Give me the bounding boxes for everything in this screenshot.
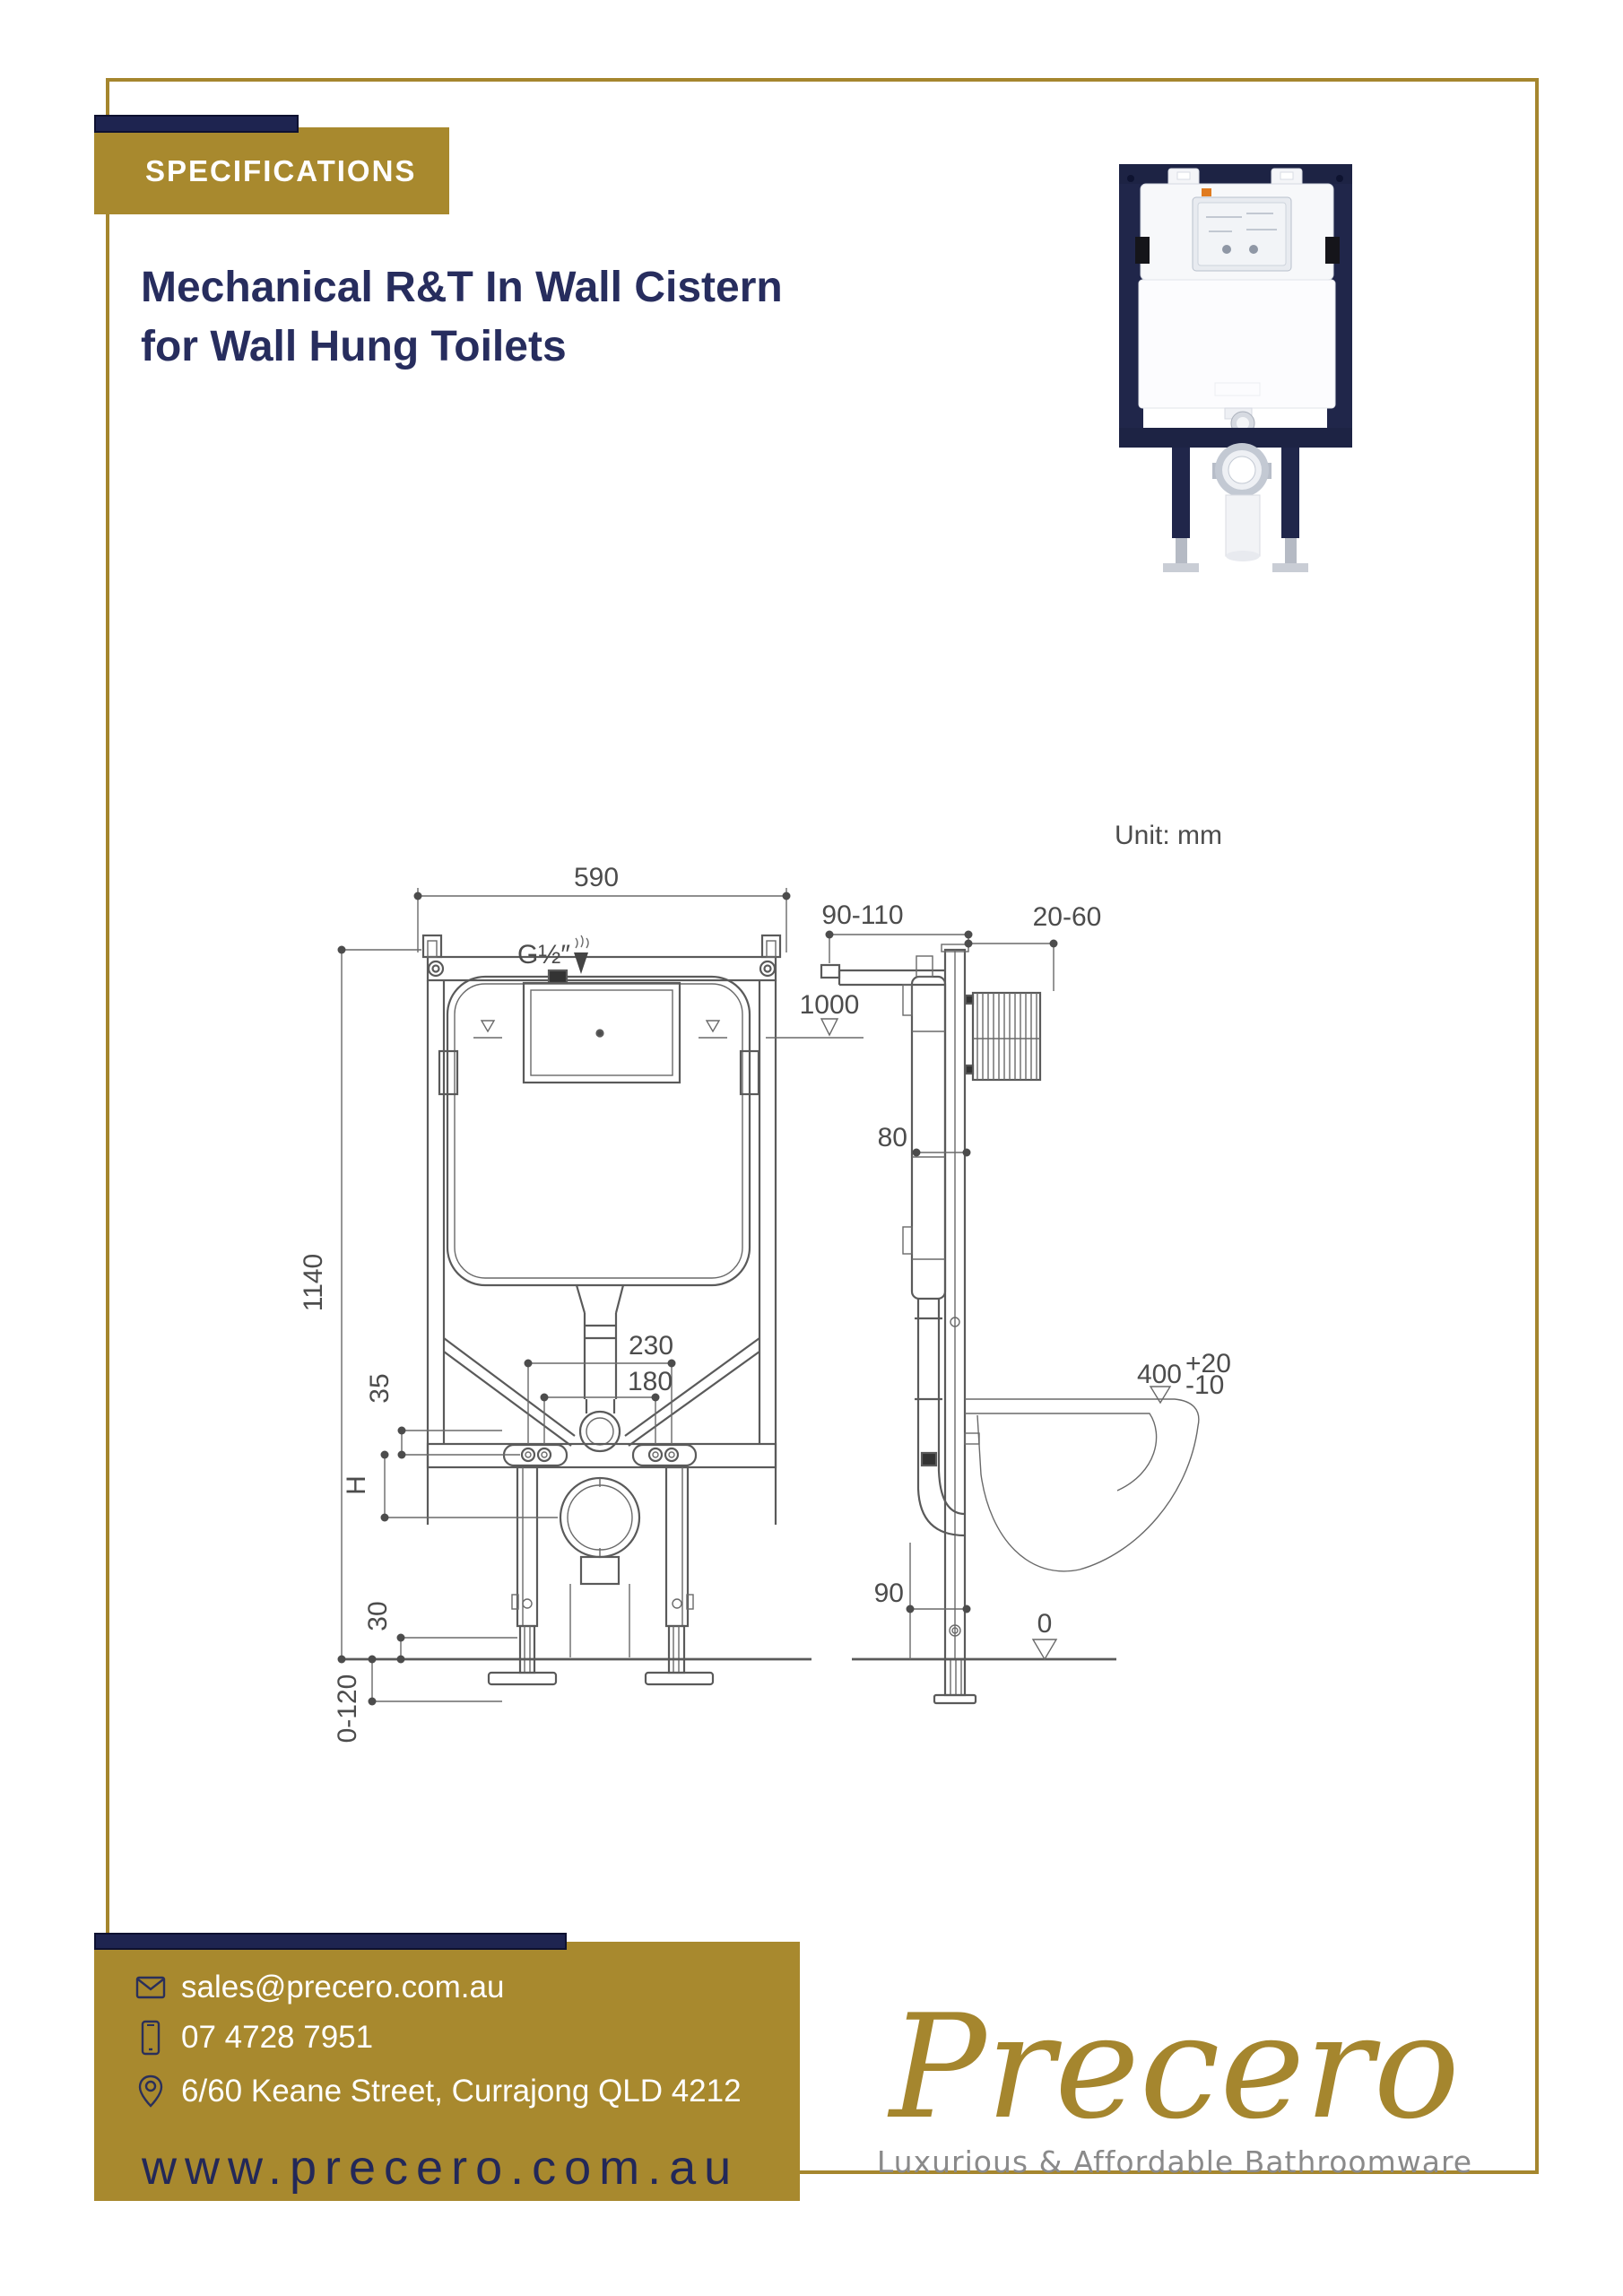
dim-90-110-label: 90-110 (821, 900, 903, 930)
dim-400-label: 400 (1137, 1360, 1182, 1389)
dim-0-120-label: 0-120 (333, 1674, 362, 1744)
unit-label: Unit: mm (1115, 821, 1222, 850)
photo-flush-pipe-and-feet (1119, 408, 1352, 572)
specifications-badge: SPECIFICATIONS (94, 127, 449, 214)
dim-180-label: 180 (628, 1367, 673, 1396)
dimension-lines (338, 888, 1171, 1706)
location-pin-icon (135, 2074, 167, 2109)
dim-400-minus-tol-label: -10 (1185, 1370, 1224, 1400)
contact-address: 6/60 Keane Street, Currajong QLD 4212 (181, 2074, 742, 2109)
mail-icon (135, 1970, 167, 2005)
contact-phone-row: 07 4728 7951 (135, 2020, 373, 2056)
dim-1140-label: 1140 (299, 1254, 328, 1312)
page-title-line1: Mechanical R&T In Wall Cistern (141, 258, 783, 317)
page-title: Mechanical R&T In Wall Cistern for Wall … (141, 258, 783, 377)
dim-80-label: 80 (878, 1123, 907, 1152)
product-photo-inwall-cistern (1112, 154, 1358, 580)
spec-sheet-page: SPECIFICATIONS Mechanical R&T In Wall Ci… (0, 0, 1623, 2296)
header-navy-accent-bar (94, 115, 299, 133)
inlet-arrow-icon (574, 935, 588, 974)
dim-inlet-label: G½″ (517, 940, 570, 970)
dim-0-label: 0 (1037, 1609, 1053, 1639)
dim-230-label: 230 (629, 1331, 673, 1361)
contact-email[interactable]: sales@precero.com.au (181, 1970, 504, 2005)
contact-address-row: 6/60 Keane Street, Currajong QLD 4212 (135, 2074, 742, 2109)
phone-icon (135, 2020, 167, 2056)
dim-90-label: 90 (874, 1578, 904, 1608)
dim-H-label: H (342, 1475, 371, 1495)
dim-35-label: 35 (365, 1373, 395, 1403)
dim-590-label: 590 (574, 863, 619, 892)
website-url[interactable]: www.precero.com.au (142, 2140, 739, 2196)
front-view-linework (342, 935, 811, 1684)
photo-cistern (1135, 169, 1340, 408)
contact-phone[interactable]: 07 4728 7951 (181, 2020, 373, 2056)
precero-logo: Precero (834, 1996, 1515, 2139)
dim-20-60-label: 20-60 (1033, 902, 1102, 932)
dim-1000-label: 1000 (800, 990, 860, 1020)
page-title-line2: for Wall Hung Toilets (141, 317, 783, 377)
specifications-badge-label: SPECIFICATIONS (94, 154, 416, 188)
footer-navy-accent-bar (94, 1933, 567, 1950)
brand-logo-block: Precero Luxurious & Affordable Bathroomw… (834, 1996, 1515, 2179)
brand-tagline: Luxurious & Affordable Bathroomware (834, 2144, 1515, 2179)
contact-email-row: sales@precero.com.au (135, 1970, 504, 2005)
dim-30-label: 30 (363, 1601, 393, 1631)
technical-drawing: Unit: mm (242, 807, 1282, 1883)
